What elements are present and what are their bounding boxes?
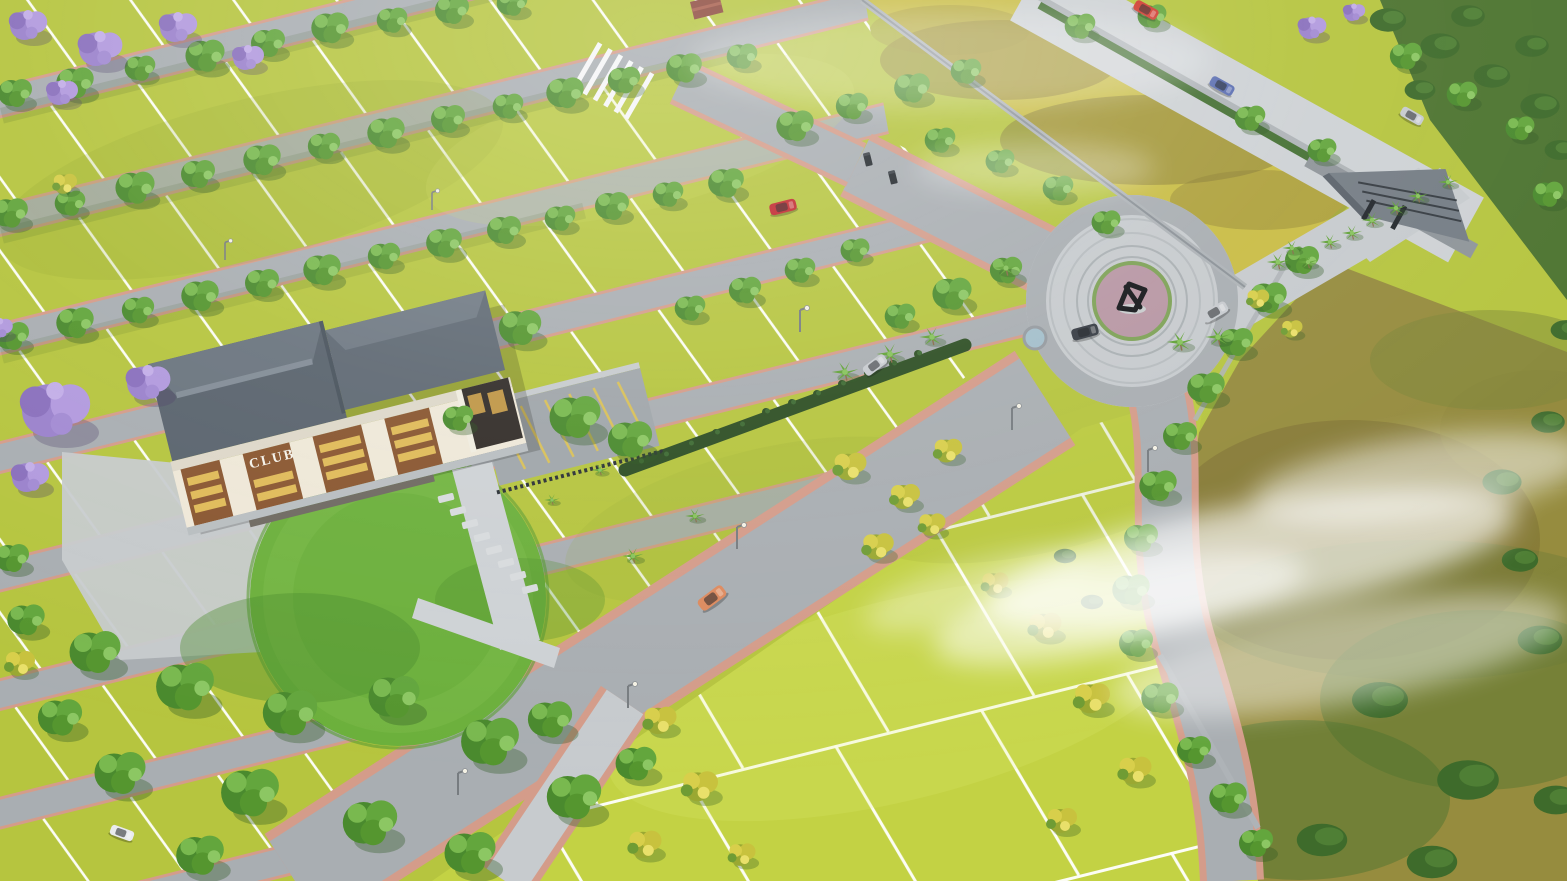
- aerial-render-image: CLUB: [0, 0, 1567, 881]
- sun-haze: [0, 0, 1567, 881]
